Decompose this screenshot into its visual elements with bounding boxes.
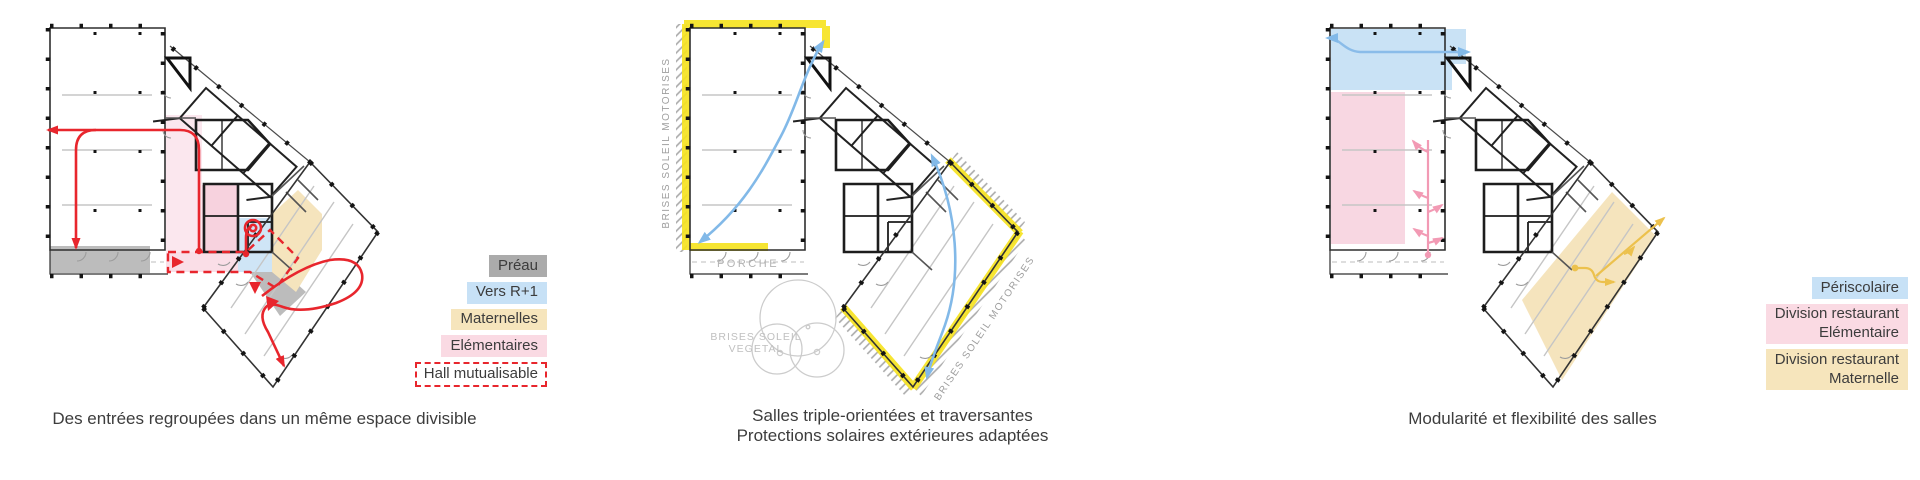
floor-plan-modularity [1280, 0, 1920, 480]
legend-item-vers-r1: Vers R+1 [467, 282, 547, 304]
panel-modularity: Périscolaire Division restaurant Elément… [1280, 0, 1920, 480]
legend-label: Division restaurant [1775, 305, 1899, 324]
panel-solar-protection: BRISES SOLEIL MOTORISES PORCHE BRISES SO… [640, 0, 1280, 480]
legend-label-line2: Maternelle [1775, 370, 1899, 389]
legend-item-preau: Préau [489, 255, 547, 277]
caption-solar: Salles triple-orientées et traversantes … [640, 406, 1145, 446]
legend-item-hall: Hall mutualisable [415, 362, 547, 387]
legend-entrances: Préau Vers R+1 Maternelles Elémentaires … [415, 255, 547, 387]
legend-item-restaurant-maternelle: Division restaurant Maternelle [1766, 349, 1908, 390]
label-vegetal-line1: BRISES SOLEIL [710, 331, 801, 343]
label-porche: PORCHE [717, 258, 779, 270]
cross-ventilation-arrows [700, 42, 955, 377]
legend-item-maternelles: Maternelles [451, 309, 547, 331]
legend-item-periscolaire: Périscolaire [1812, 277, 1908, 299]
floor-plan-entrances [0, 0, 640, 480]
label-brises-soleil-left: BRISES SOLEIL MOTORISES [661, 57, 672, 228]
elementaire-division-arrows [1413, 140, 1442, 258]
caption-modularity: Modularité et flexibilité des salles [1280, 409, 1785, 429]
vegetal-trees [752, 280, 844, 377]
caption-solar-line1: Salles triple-orientées et traversantes [640, 406, 1145, 426]
legend-item-elementaires: Elémentaires [441, 335, 547, 357]
caption-entrances: Des entrées regroupées dans un même espa… [12, 409, 517, 429]
legend-label: Division restaurant [1775, 351, 1899, 370]
label-vegetal-line2: VEGETAL [729, 343, 784, 355]
panel-entrances: Préau Vers R+1 Maternelles Elémentaires … [0, 0, 640, 480]
legend-modularity: Périscolaire Division restaurant Elément… [1766, 277, 1908, 390]
legend-item-restaurant-elementaire: Division restaurant Elémentaire [1766, 304, 1908, 345]
legend-label-line2: Elémentaire [1775, 324, 1899, 343]
program-zones [50, 115, 322, 316]
triptych-floor-plan-diagrams: Préau Vers R+1 Maternelles Elémentaires … [0, 0, 1920, 480]
caption-solar-line2: Protections solaires extérieures adaptée… [640, 426, 1145, 446]
legend-label: Périscolaire [1821, 279, 1899, 298]
